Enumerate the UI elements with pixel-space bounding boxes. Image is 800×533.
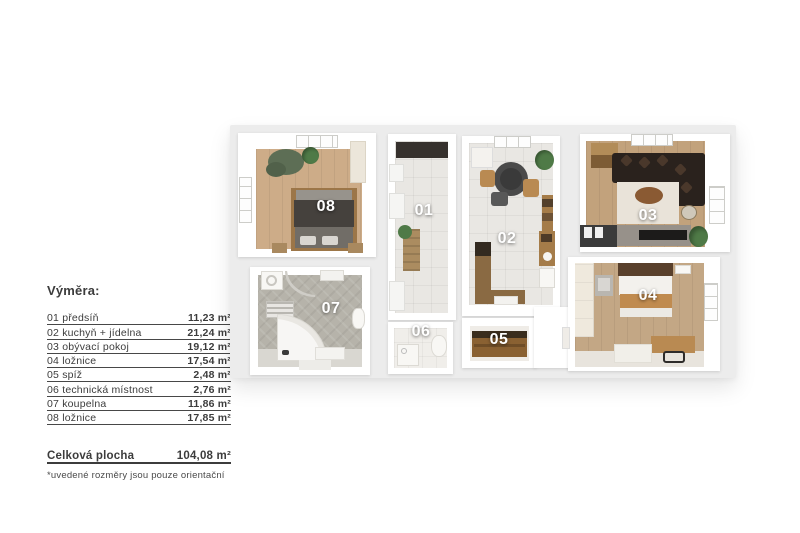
legend-footnote: *uvedené rozměry jsou pouze orientační bbox=[47, 470, 231, 481]
washing-machine-drum bbox=[266, 275, 277, 286]
room-label-04: 04 bbox=[639, 287, 658, 305]
cooktop bbox=[542, 199, 553, 207]
coffee-table bbox=[635, 187, 663, 204]
skylight-icon bbox=[631, 134, 673, 146]
area-legend: Výměra: 01 předsíň11,23 m² 02 kuchyň + j… bbox=[47, 283, 231, 481]
washing-machine-dial bbox=[401, 348, 407, 354]
poster bbox=[595, 227, 603, 238]
shelf-unit bbox=[471, 147, 493, 168]
toilet bbox=[431, 335, 447, 357]
skylight-icon bbox=[494, 136, 531, 148]
tv bbox=[639, 230, 687, 240]
poster bbox=[584, 227, 592, 238]
faucet-icon bbox=[282, 350, 289, 355]
total-area: 104,08 m² bbox=[177, 450, 231, 462]
room-area: 11,23 m² bbox=[188, 312, 231, 324]
legend-row: 08 ložnice17,85 m² bbox=[47, 411, 231, 425]
legend-total-row: Celková plocha104,08 m² bbox=[47, 448, 231, 464]
chair bbox=[480, 170, 495, 187]
rug bbox=[614, 344, 652, 363]
legend-title: Výměra: bbox=[47, 283, 231, 298]
room-label-07: 07 bbox=[322, 300, 341, 318]
vanity bbox=[320, 270, 344, 281]
washing-machine bbox=[397, 344, 419, 366]
plant-icon bbox=[689, 226, 708, 247]
room-area: 11,86 m² bbox=[188, 398, 231, 410]
window-icon bbox=[704, 283, 718, 321]
legend-row: 02 kuchyň + jídelna21,24 m² bbox=[47, 325, 231, 339]
room-label-01: 01 bbox=[415, 202, 434, 220]
chair bbox=[523, 179, 539, 197]
cabinet bbox=[591, 155, 612, 168]
legend-row: 06 technická místnost2,76 m² bbox=[47, 382, 231, 396]
nightstand bbox=[348, 243, 363, 253]
plant-icon bbox=[398, 225, 412, 239]
oven bbox=[475, 242, 491, 256]
room-label-03: 03 bbox=[639, 207, 658, 225]
room-name: 07 koupelna bbox=[47, 398, 106, 410]
wardrobe bbox=[575, 263, 594, 337]
window-icon bbox=[709, 186, 725, 224]
room-area: 2,48 m² bbox=[193, 369, 231, 381]
total-label: Celková plocha bbox=[47, 450, 134, 462]
room-label-08: 08 bbox=[317, 198, 336, 216]
legend-row: 07 koupelna11,86 m² bbox=[47, 397, 231, 411]
bed-foot bbox=[620, 308, 672, 317]
bed-pillow bbox=[300, 236, 316, 245]
sink bbox=[542, 213, 553, 221]
door-mat bbox=[396, 142, 448, 158]
basket bbox=[681, 205, 697, 220]
room-name: 03 obývací pokoj bbox=[47, 341, 129, 353]
kitchen-mat bbox=[494, 296, 518, 305]
chair bbox=[491, 192, 508, 206]
nightstand bbox=[272, 243, 287, 253]
mirror bbox=[598, 278, 610, 291]
door bbox=[389, 164, 404, 182]
legend-row: 03 obývací pokoj19,12 m² bbox=[47, 340, 231, 354]
bath-mat bbox=[315, 347, 345, 360]
wardrobe bbox=[350, 141, 366, 183]
room-name: 01 předsíň bbox=[47, 312, 99, 324]
island-item bbox=[541, 234, 552, 242]
door bbox=[562, 327, 570, 349]
plant-icon bbox=[535, 150, 554, 170]
room-label-06: 06 bbox=[412, 323, 431, 341]
dining-table-top bbox=[500, 168, 522, 190]
room-area: 2,76 m² bbox=[193, 384, 231, 396]
door bbox=[389, 281, 405, 311]
room-label-05: 05 bbox=[490, 331, 509, 349]
desk-chair bbox=[663, 351, 685, 363]
window-icon bbox=[239, 177, 252, 223]
armchair bbox=[266, 162, 286, 177]
bath-mat bbox=[299, 360, 331, 370]
skylight-icon bbox=[296, 135, 338, 148]
room-area: 17,85 m² bbox=[187, 412, 231, 424]
door bbox=[389, 193, 405, 219]
room-name: 06 technická místnost bbox=[47, 384, 153, 396]
plant-icon bbox=[302, 147, 319, 164]
legend-row: 01 předsíň11,23 m² bbox=[47, 311, 231, 325]
fridge bbox=[539, 268, 555, 288]
bed-pillow bbox=[322, 236, 338, 245]
shelf bbox=[675, 265, 691, 274]
room-area: 21,24 m² bbox=[187, 327, 231, 339]
bed-headboard bbox=[618, 263, 673, 276]
sink-bowl bbox=[543, 252, 552, 261]
toilet bbox=[352, 308, 365, 329]
legend-row: 05 spíž2,48 m² bbox=[47, 368, 231, 382]
legend-row: 04 ložnice17,54 m² bbox=[47, 354, 231, 368]
floor-plan: 01 02 03 04 05 06 07 08 bbox=[230, 125, 736, 378]
room-area: 17,54 m² bbox=[187, 355, 231, 367]
room-label-02: 02 bbox=[498, 230, 517, 248]
room-name: 05 spíž bbox=[47, 369, 82, 381]
room-name: 04 ložnice bbox=[47, 355, 96, 367]
room-name: 08 ložnice bbox=[47, 412, 96, 424]
room-area: 19,12 m² bbox=[187, 341, 231, 353]
room-name: 02 kuchyň + jídelna bbox=[47, 327, 142, 339]
